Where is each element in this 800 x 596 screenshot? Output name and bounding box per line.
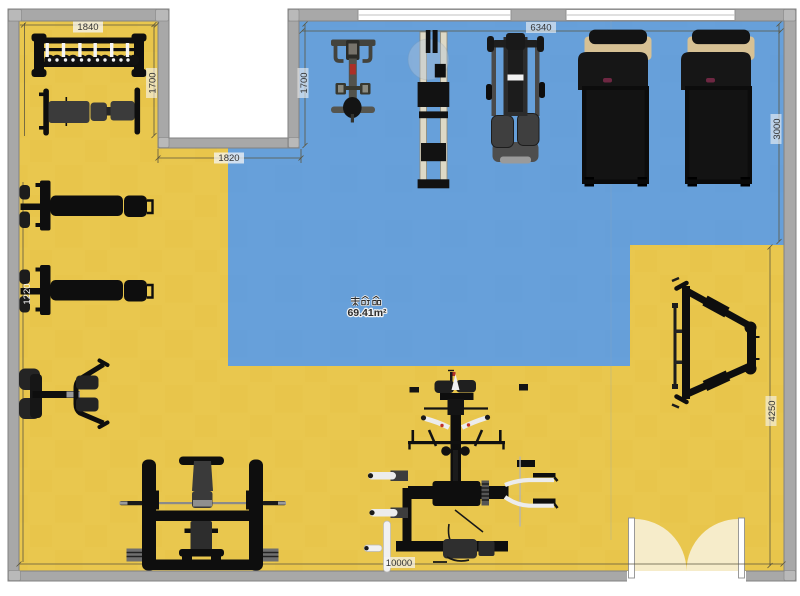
svg-text:1840: 1840 [77, 22, 98, 33]
svg-text:6340: 6340 [530, 23, 551, 34]
svg-text:1700: 1700 [148, 72, 159, 93]
svg-text:4250: 4250 [767, 400, 778, 421]
svg-text:1700: 1700 [299, 72, 310, 93]
svg-text:1820: 1820 [218, 153, 239, 164]
svg-text:69.41m²: 69.41m² [347, 307, 387, 319]
svg-text:10000: 10000 [386, 558, 412, 569]
svg-text:1220: 1220 [22, 283, 33, 304]
svg-text:3000: 3000 [772, 118, 783, 139]
